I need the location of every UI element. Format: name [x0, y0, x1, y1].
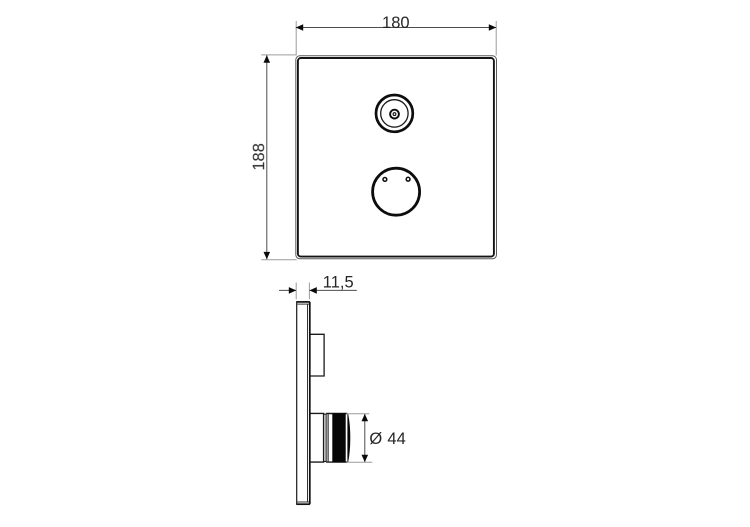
svg-text:188: 188: [250, 143, 268, 171]
svg-text:Ø: Ø: [369, 430, 382, 448]
svg-text:180: 180: [382, 14, 410, 32]
svg-text:11,5: 11,5: [323, 274, 354, 292]
svg-text:44: 44: [387, 430, 405, 448]
